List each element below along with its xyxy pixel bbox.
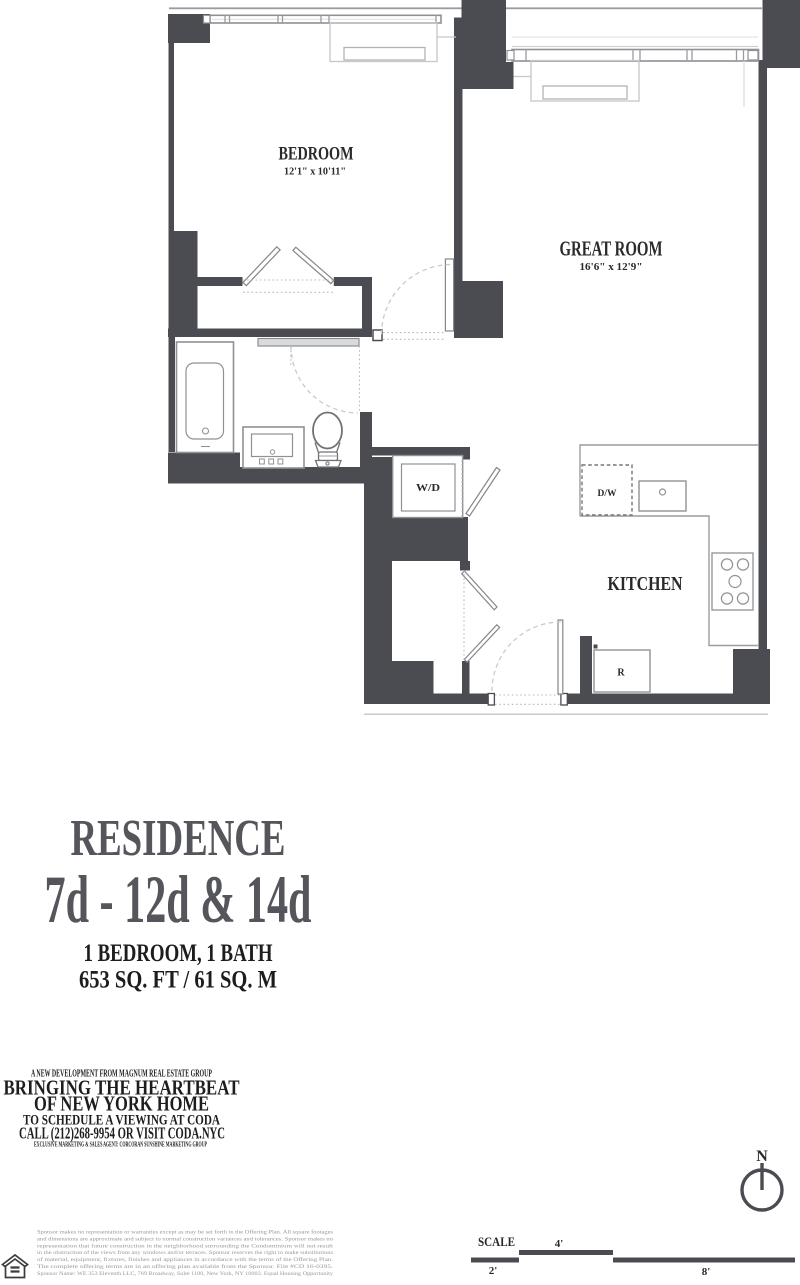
svg-text:2': 2' (489, 1265, 498, 1277)
svg-text:8': 8' (702, 1266, 711, 1278)
svg-text:SCALE: SCALE (478, 1235, 515, 1249)
svg-text:EXCLUSIVE MARKETING & SALES AG: EXCLUSIVE MARKETING & SALES AGENT: CORCO… (34, 1141, 207, 1149)
svg-text:of material, equipment, fixtur: of material, equipment, fixtures, finish… (37, 1256, 334, 1263)
svg-text:16'6" x 12'9": 16'6" x 12'9" (580, 262, 643, 273)
svg-text:1 BEDROOM, 1 BATH: 1 BEDROOM, 1 BATH (84, 940, 273, 967)
svg-text:and dimensions are approximate: and dimensions are approximate and subje… (37, 1236, 333, 1242)
svg-text:Sponsor Name: WE 353 Eleventh: Sponsor Name: WE 353 Eleventh LLC, 769 B… (37, 1271, 333, 1277)
svg-text:Sponsor makes no representatio: Sponsor makes no representation or warra… (37, 1229, 334, 1236)
svg-text:representation that future con: representation that future construction … (37, 1242, 334, 1249)
svg-text:12'1" x 10'11": 12'1" x 10'11" (284, 167, 346, 178)
svg-text:KITCHEN: KITCHEN (608, 573, 683, 595)
svg-text:The complete offering terms ar: The complete offering terms are in an of… (37, 1263, 334, 1270)
svg-text:D/W: D/W (598, 489, 618, 499)
svg-text:RESIDENCE: RESIDENCE (71, 810, 286, 867)
svg-text:W/D: W/D (416, 483, 440, 494)
svg-text:GREAT ROOM: GREAT ROOM (560, 237, 663, 261)
svg-text:7d - 12d & 14d: 7d - 12d & 14d (45, 861, 312, 937)
svg-text:653 SQ. FT / 61 SQ. M: 653 SQ. FT / 61 SQ. M (79, 967, 277, 994)
svg-text:4': 4' (555, 1238, 564, 1250)
svg-text:R: R (617, 668, 625, 679)
svg-text:BEDROOM: BEDROOM (279, 144, 354, 165)
svg-text:N: N (756, 1148, 768, 1165)
svg-text:in the obstruction of the view: in the obstruction of the views from any… (37, 1249, 334, 1256)
